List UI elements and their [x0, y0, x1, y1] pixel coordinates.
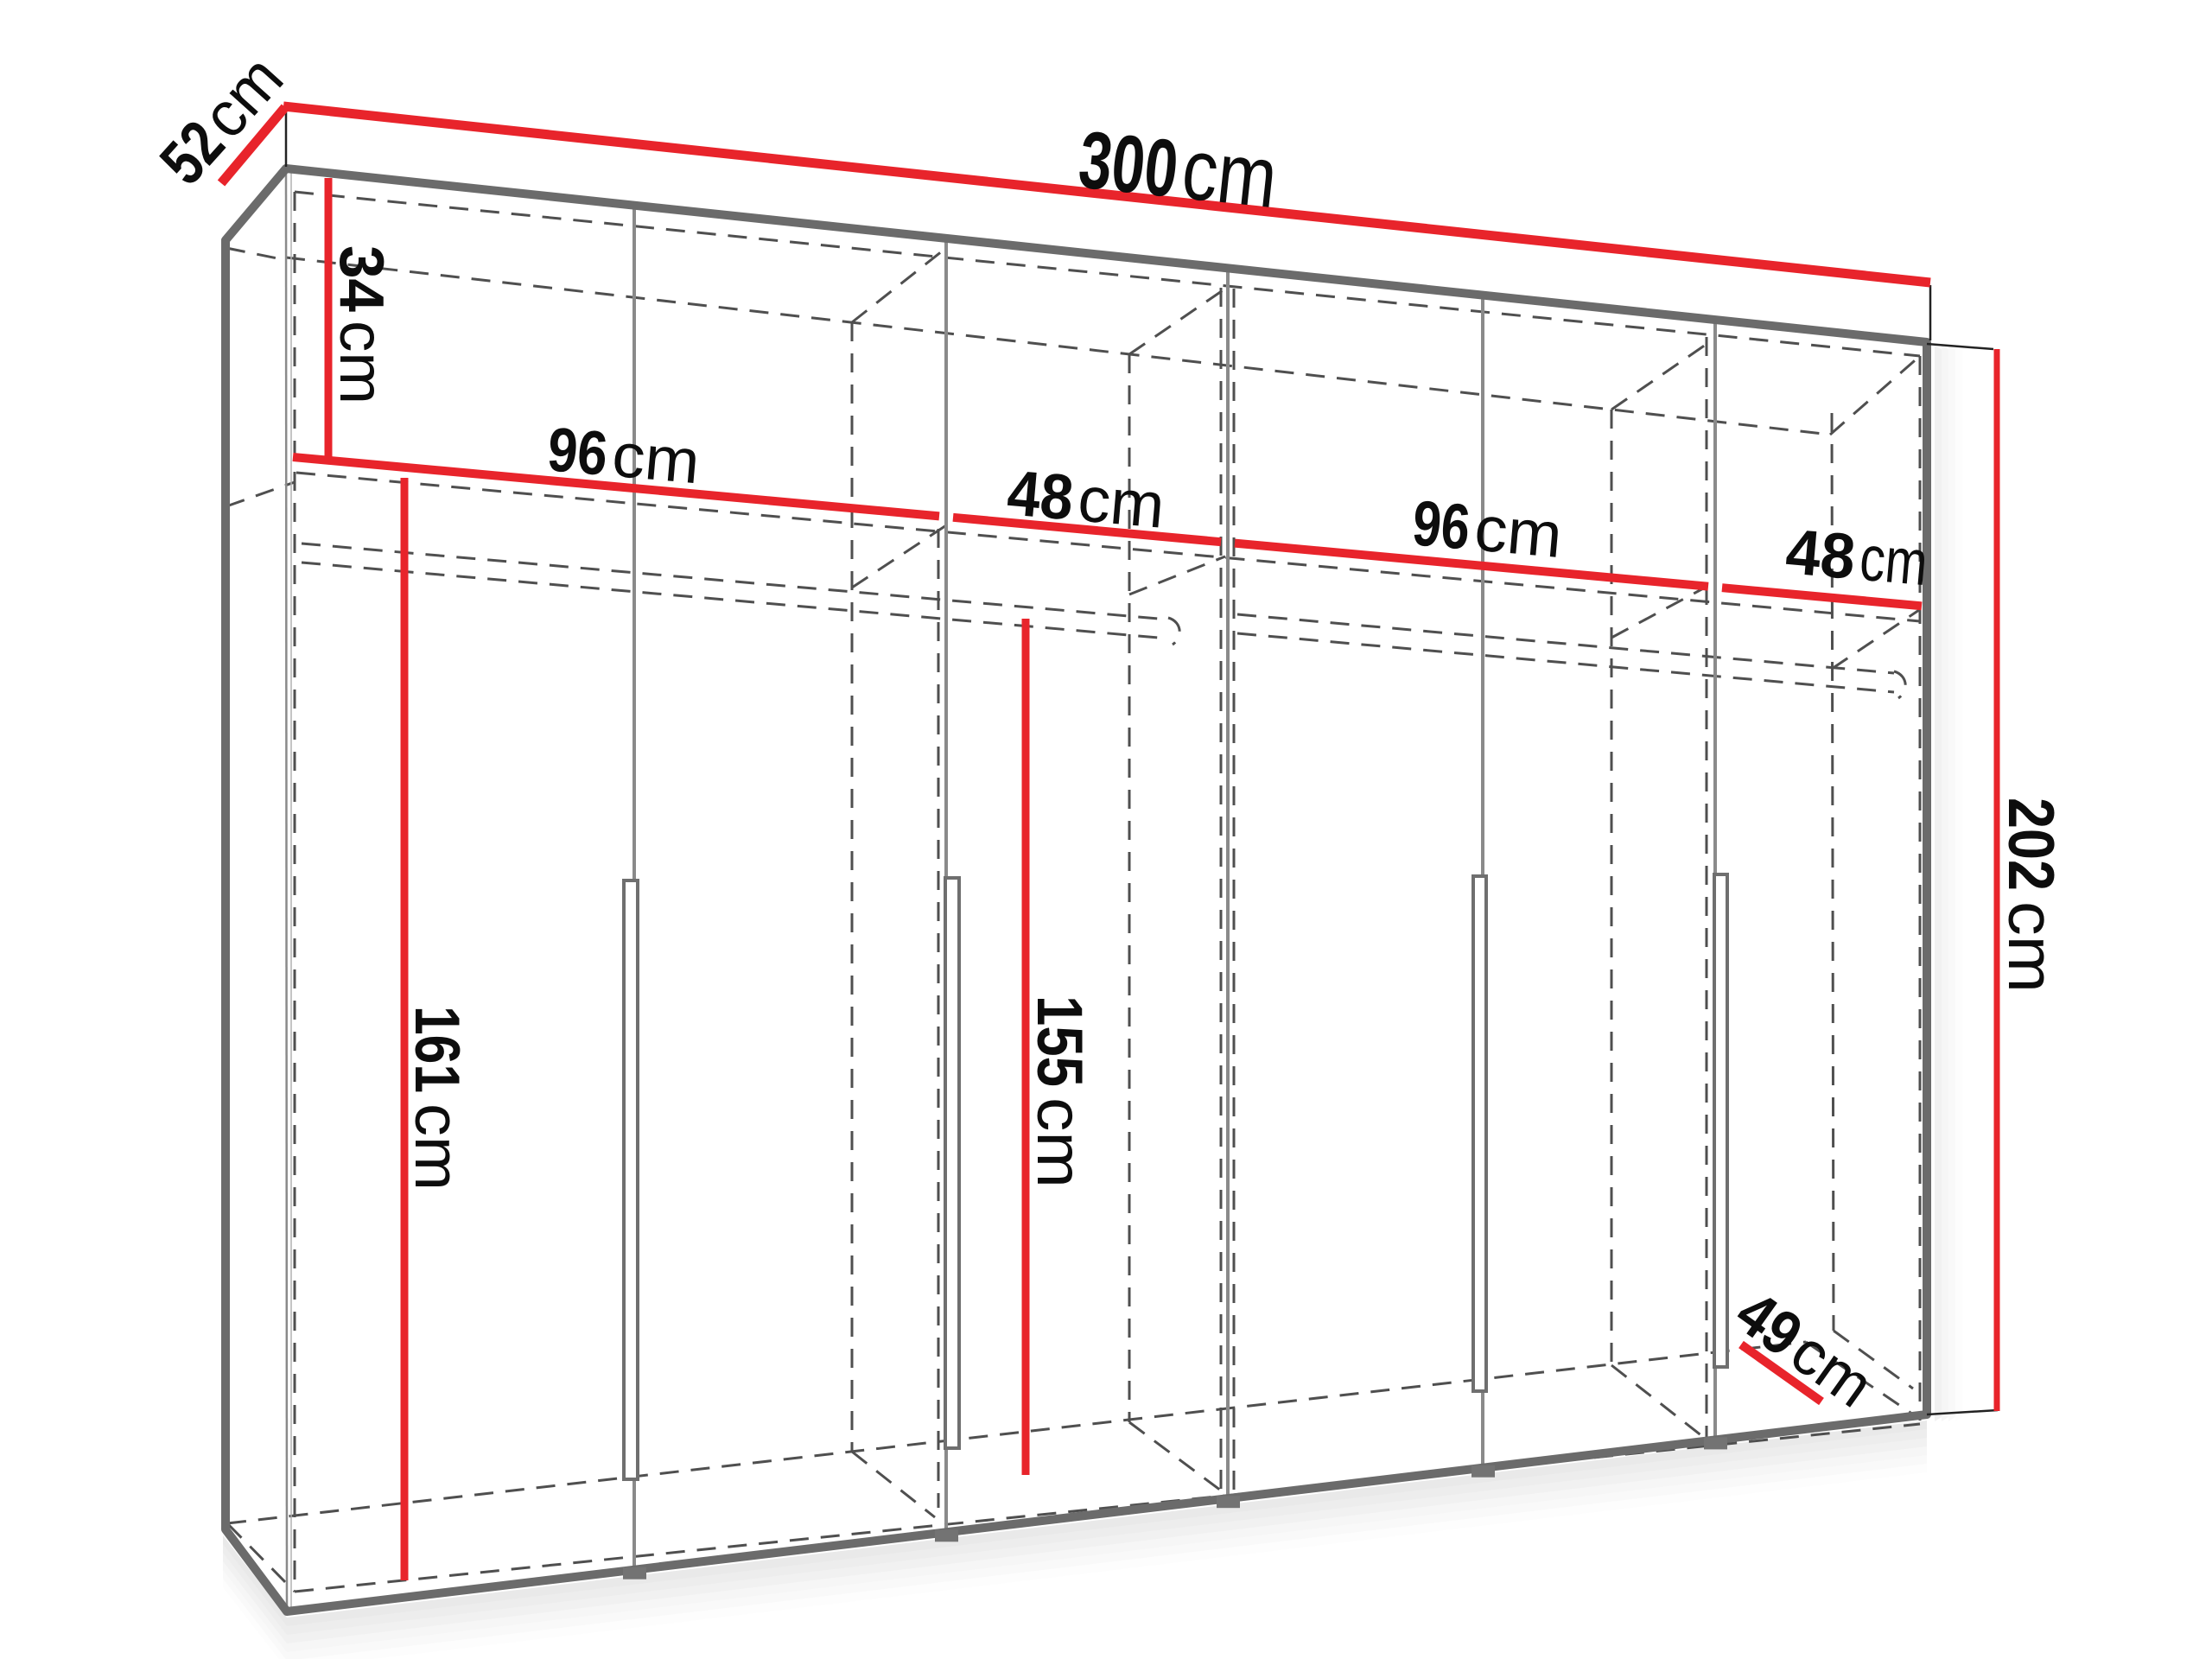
- svg-text:96cm: 96cm: [1410, 486, 1566, 571]
- svg-text:48cm: 48cm: [1005, 456, 1168, 542]
- svg-text:96cm: 96cm: [545, 415, 702, 497]
- svg-text:34cm: 34cm: [327, 245, 396, 404]
